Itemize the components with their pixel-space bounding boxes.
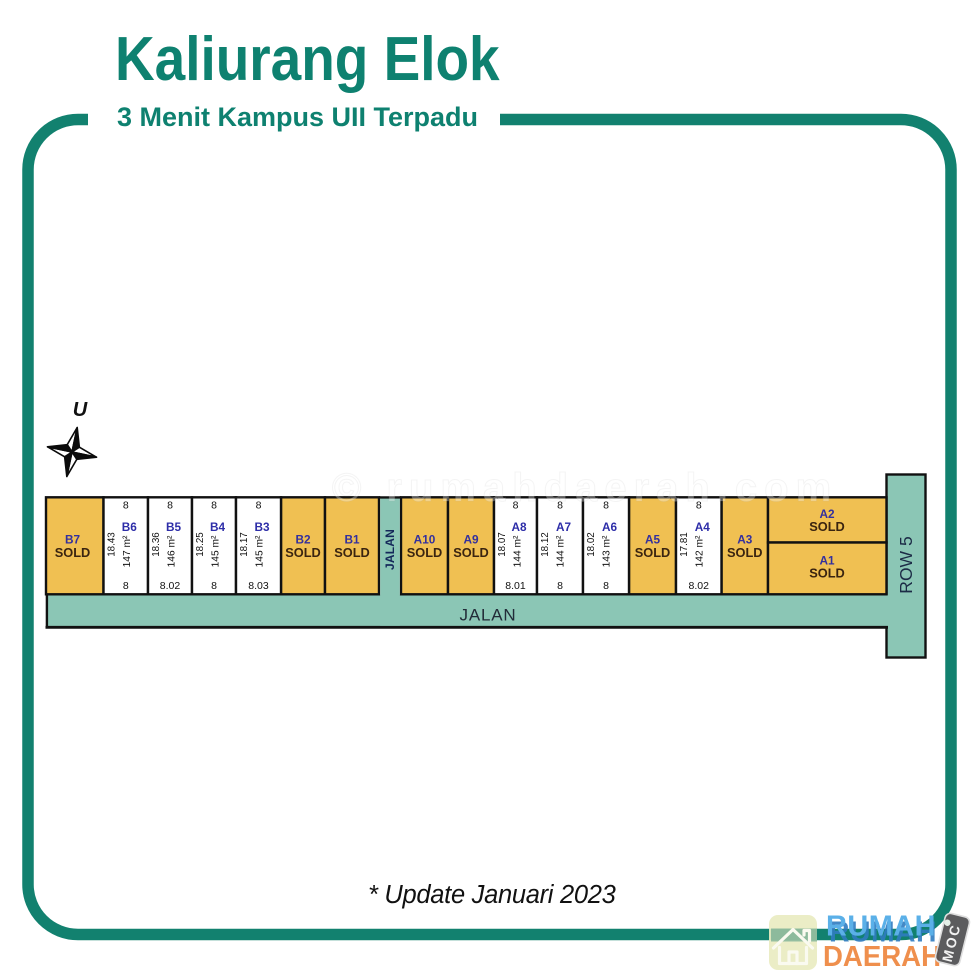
svg-text:DAERAH: DAERAH xyxy=(823,941,941,973)
svg-text:RUMAH: RUMAH xyxy=(826,911,936,943)
